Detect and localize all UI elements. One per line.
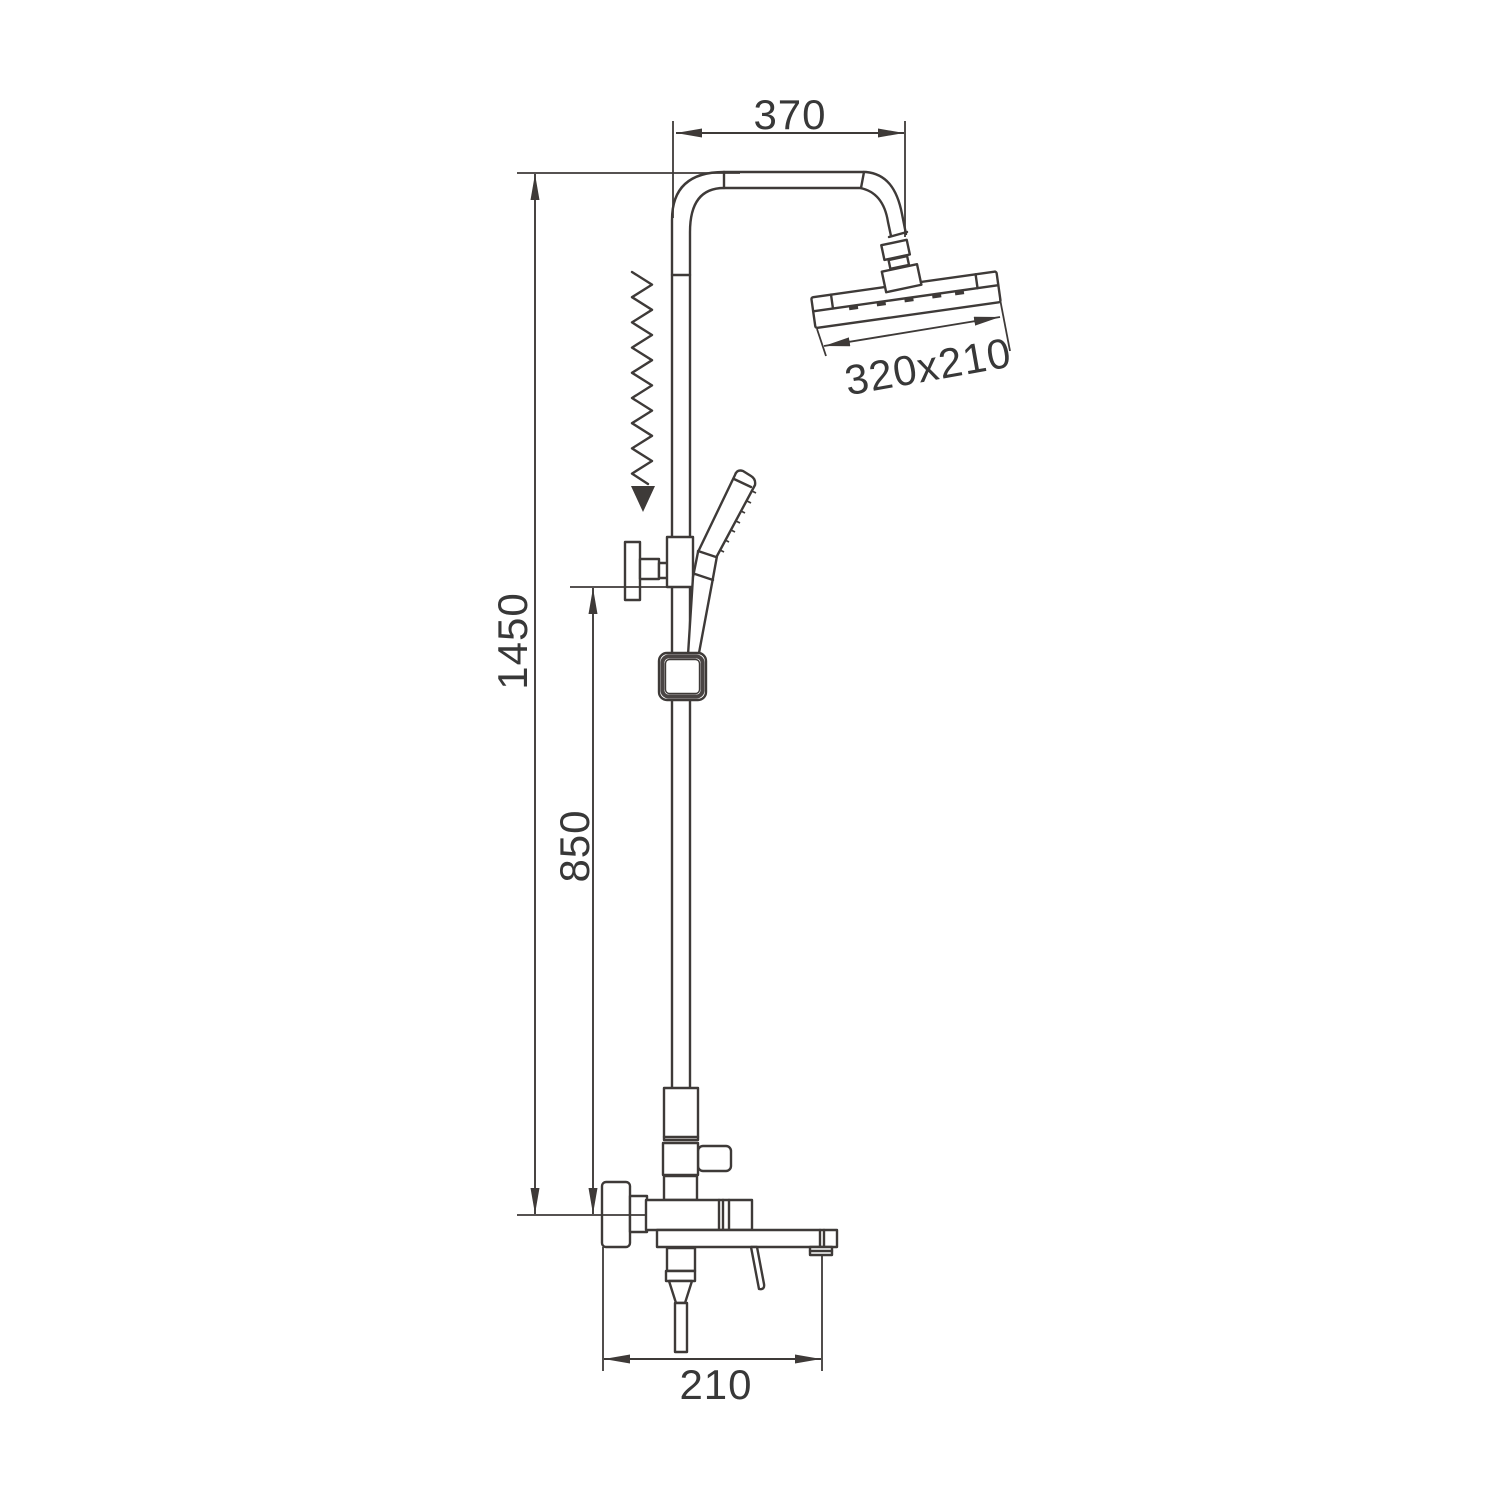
dimension-arm-width-label: 370 — [753, 91, 826, 138]
drawing-canvas: 370 320x210 1450 850 210 — [0, 0, 1500, 1500]
dimension-spout-width-label: 210 — [679, 1361, 752, 1408]
bracket-slider — [667, 537, 693, 587]
mixer-wall-connector — [630, 1196, 647, 1232]
dimension-head-size-label: 320x210 — [841, 329, 1015, 404]
hand-shower — [688, 471, 756, 656]
slide-bracket — [625, 537, 693, 600]
bracket-wall-flange — [625, 542, 640, 600]
mixer-body — [646, 1200, 752, 1230]
shower-head-connector-nut — [876, 239, 921, 292]
riser-base-block — [664, 1088, 698, 1140]
dimension-spout-width: 210 — [603, 1247, 822, 1408]
dimension-riser-height-label: 850 — [551, 809, 598, 882]
dimension-riser-height: 850 — [551, 587, 670, 1214]
slide-direction-arrow — [631, 272, 655, 512]
mixer-lever-handle — [751, 1247, 764, 1289]
dimension-overall-height-label: 1450 — [489, 592, 536, 689]
arrowhead-down — [631, 486, 655, 512]
diverter-outlet — [666, 1248, 695, 1352]
hand-shower-holder — [659, 653, 706, 700]
dimension-arm-width: 370 — [673, 91, 905, 237]
shower-set-technical-drawing: 370 320x210 1450 850 210 — [0, 0, 1500, 1500]
mixer-assembly — [602, 1088, 837, 1352]
pipe-joint-line — [861, 172, 864, 188]
diverter-knob — [698, 1146, 731, 1171]
